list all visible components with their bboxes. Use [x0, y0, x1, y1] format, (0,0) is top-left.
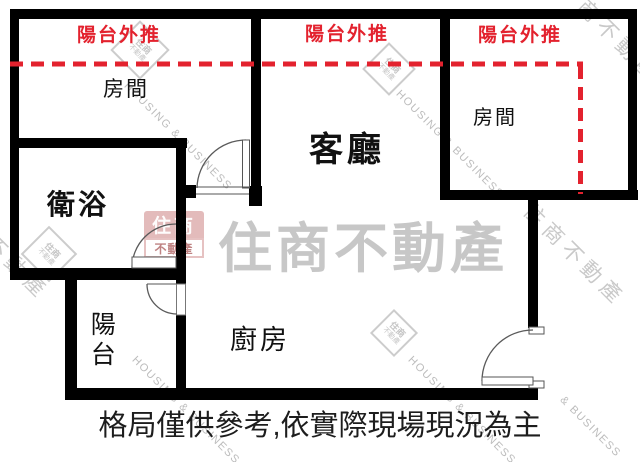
door-arc-balcony: [147, 284, 177, 314]
door-arc-entry: [482, 330, 533, 381]
floorplan-canvas: 住商不動產 住商 不動產 HOUSING & BUSINESS HOUSING …: [0, 0, 640, 462]
door-threshold-bedroom1: [196, 187, 249, 194]
door-arc-bedroom1: [197, 140, 246, 188]
door-and-annotation-overlay: [0, 0, 640, 462]
door-opening-balcony: [177, 284, 186, 315]
door-leaf-entry: [482, 377, 533, 385]
door-leaf-bedroom1: [243, 140, 250, 188]
door-leaf-bathroom: [132, 257, 176, 268]
